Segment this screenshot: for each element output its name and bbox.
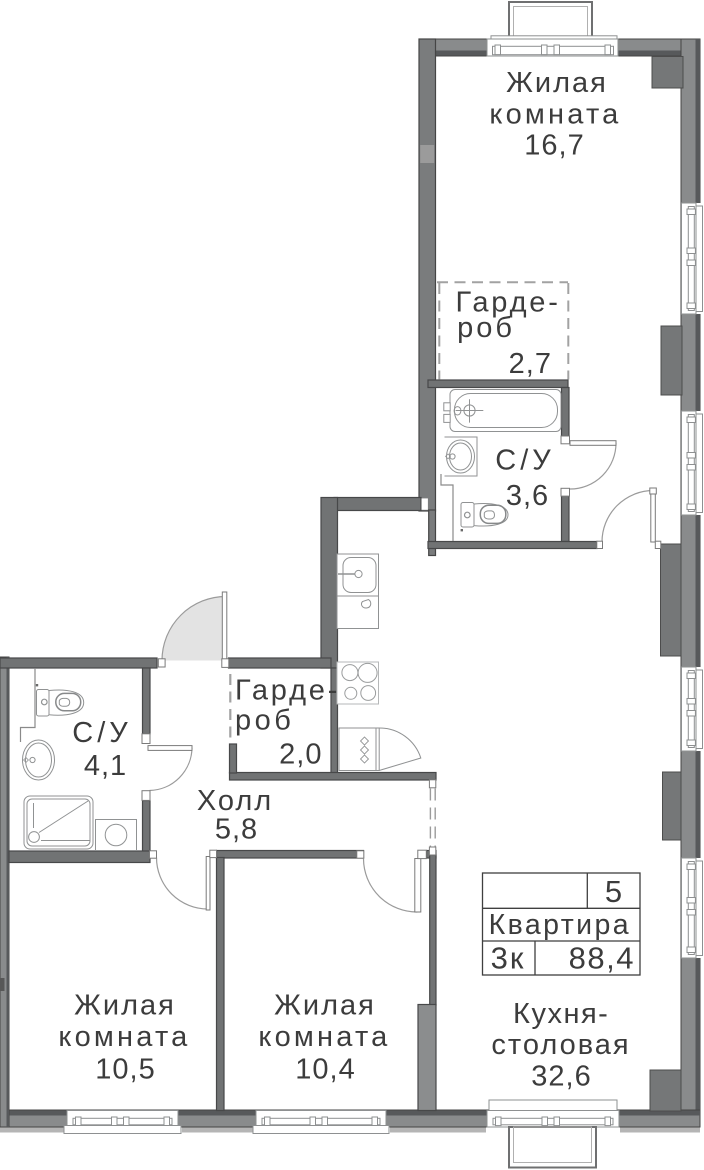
svg-text:32,6: 32,6 bbox=[531, 1061, 591, 1093]
svg-text:Квартира: Квартира bbox=[489, 909, 631, 941]
svg-text:2,0: 2,0 bbox=[279, 739, 322, 771]
svg-text:С/У: С/У bbox=[495, 445, 554, 477]
svg-text:С/У: С/У bbox=[72, 717, 131, 749]
svg-text:Жилая: Жилая bbox=[74, 990, 176, 1022]
svg-text:Жилая: Жилая bbox=[506, 67, 608, 99]
svg-text:4,1: 4,1 bbox=[84, 750, 127, 782]
svg-text:88,4: 88,4 bbox=[569, 941, 635, 976]
svg-text:комната: комната bbox=[258, 1021, 390, 1053]
svg-text:Холл: Холл bbox=[197, 785, 273, 817]
svg-text:2,7: 2,7 bbox=[509, 348, 552, 380]
svg-text:5,8: 5,8 bbox=[215, 814, 258, 846]
svg-text:роб: роб bbox=[457, 312, 515, 344]
svg-text:10,4: 10,4 bbox=[295, 1054, 355, 1086]
svg-text:комната: комната bbox=[489, 99, 621, 131]
svg-text:3,6: 3,6 bbox=[506, 480, 549, 512]
svg-text:столовая: столовая bbox=[491, 1029, 630, 1061]
svg-text:комната: комната bbox=[58, 1021, 190, 1053]
svg-text:роб: роб bbox=[235, 705, 294, 737]
svg-text:Жилая: Жилая bbox=[274, 990, 376, 1022]
svg-text:10,5: 10,5 bbox=[95, 1054, 155, 1086]
svg-text:5: 5 bbox=[605, 874, 622, 909]
svg-text:Гарде-: Гарде- bbox=[235, 675, 340, 707]
svg-text:Кухня-: Кухня- bbox=[513, 998, 609, 1030]
svg-text:16,7: 16,7 bbox=[524, 130, 584, 162]
svg-text:3к: 3к bbox=[491, 941, 526, 976]
